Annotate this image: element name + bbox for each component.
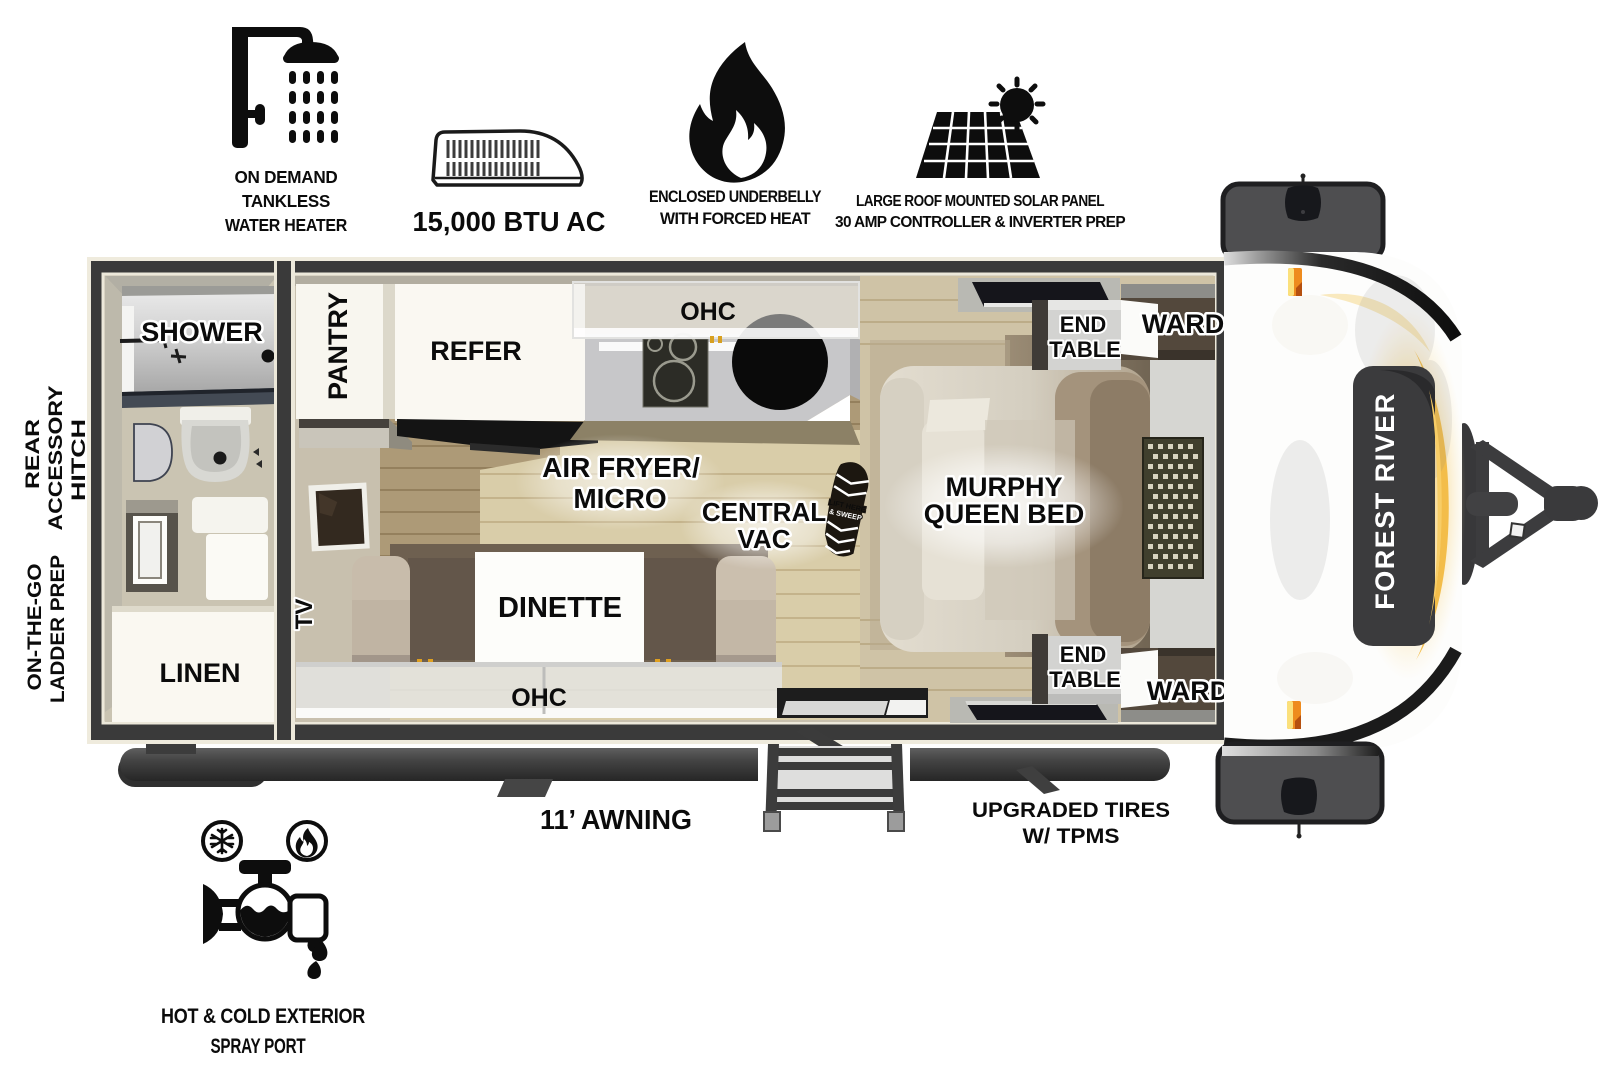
svg-text:ON DEMAND: ON DEMAND: [235, 167, 338, 187]
svg-text:SPRAY PORT: SPRAY PORT: [211, 1035, 306, 1058]
svg-text:DINETTE: DINETTE: [498, 592, 622, 624]
svg-text:MICRO: MICRO: [573, 483, 666, 514]
svg-text:WARD: WARD: [1142, 309, 1225, 339]
svg-text:PANTRY: PANTRY: [323, 292, 353, 400]
svg-text:MURPHY: MURPHY: [945, 472, 1062, 502]
svg-text:REFER: REFER: [430, 336, 522, 366]
svg-text:FOREST RIVER: FOREST RIVER: [1370, 392, 1400, 610]
svg-text:OHC: OHC: [511, 684, 567, 712]
svg-text:15,000 BTU AC: 15,000 BTU AC: [413, 206, 606, 237]
svg-text:LADDER PREP: LADDER PREP: [48, 555, 69, 703]
svg-text:LINEN: LINEN: [160, 658, 241, 688]
svg-text:TANKLESS: TANKLESS: [242, 191, 330, 211]
svg-text:OHC: OHC: [680, 298, 736, 326]
svg-text:TV: TV: [291, 599, 318, 630]
svg-text:ON-THE-GO: ON-THE-GO: [25, 564, 46, 691]
svg-text:WARD: WARD: [1147, 676, 1230, 706]
svg-text:TABLE: TABLE: [1049, 337, 1121, 362]
svg-text:HITCH: HITCH: [69, 419, 90, 501]
svg-text:W/ TPMS: W/ TPMS: [1023, 825, 1120, 848]
svg-text:UPGRADED TIRES: UPGRADED TIRES: [972, 799, 1170, 822]
svg-text:AIR FRYER/: AIR FRYER/: [542, 452, 700, 483]
svg-text:30 AMP CONTROLLER & INVERTER P: 30 AMP CONTROLLER & INVERTER PREP: [835, 214, 1125, 231]
svg-text:WITH FORCED HEAT: WITH FORCED HEAT: [660, 210, 811, 228]
svg-text:TABLE: TABLE: [1049, 667, 1121, 692]
svg-text:HOT & COLD EXTERIOR: HOT & COLD EXTERIOR: [161, 1005, 365, 1028]
svg-text:WATER HEATER: WATER HEATER: [225, 215, 348, 235]
svg-text:LARGE ROOF MOUNTED SOLAR PANEL: LARGE ROOF MOUNTED SOLAR PANEL: [856, 193, 1104, 210]
svg-text:REAR: REAR: [23, 419, 44, 489]
svg-text:END: END: [1060, 312, 1106, 337]
svg-text:END: END: [1060, 642, 1106, 667]
svg-text:VAC: VAC: [738, 524, 791, 554]
svg-text:SHOWER: SHOWER: [141, 317, 263, 347]
svg-text:CENTRAL: CENTRAL: [702, 497, 826, 527]
svg-text:ACCESSORY: ACCESSORY: [46, 385, 67, 530]
svg-text:ENCLOSED UNDERBELLY: ENCLOSED UNDERBELLY: [649, 188, 822, 206]
svg-text:11’ AWNING: 11’ AWNING: [540, 804, 692, 835]
svg-text:QUEEN BED: QUEEN BED: [924, 499, 1085, 529]
